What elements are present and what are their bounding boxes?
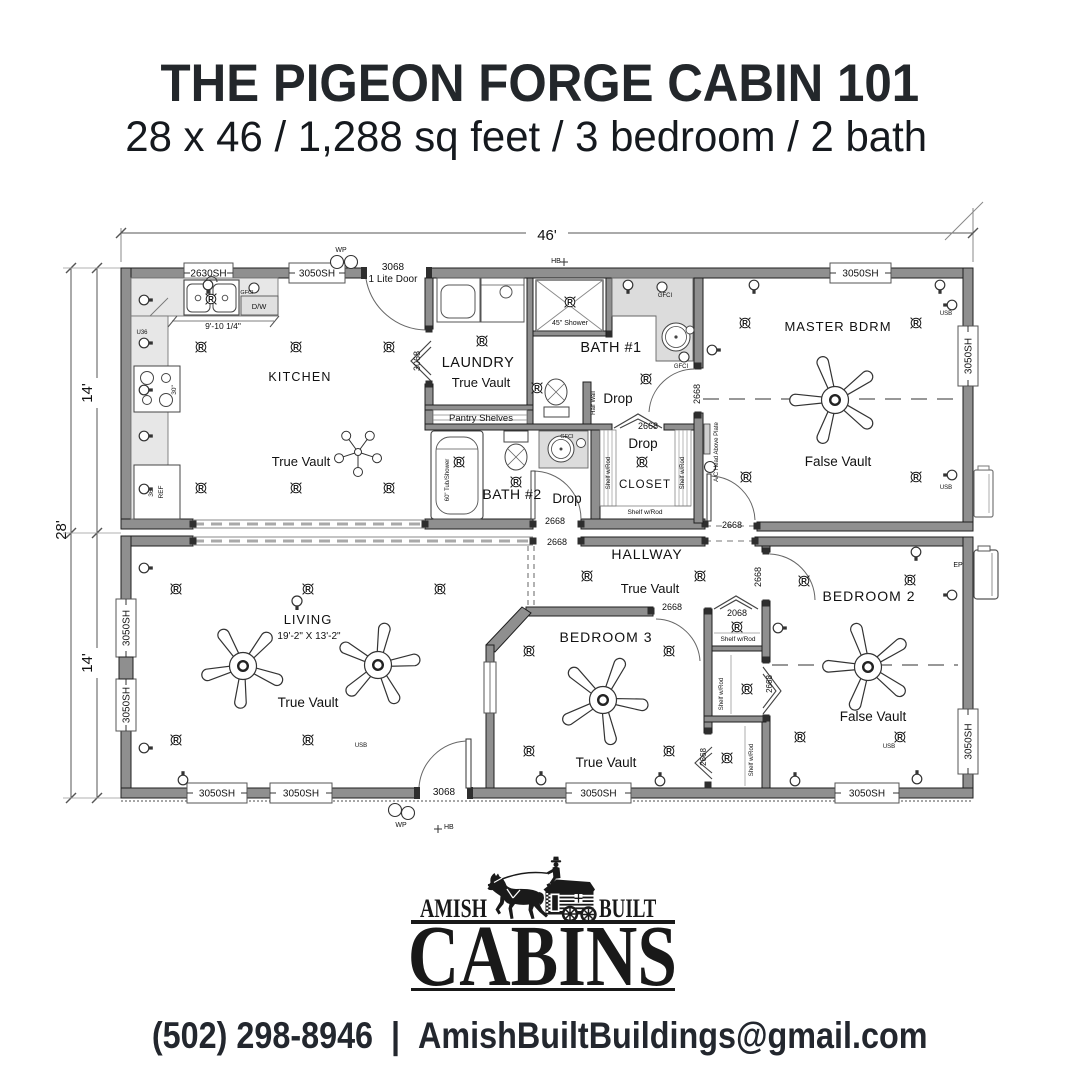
- svg-text:45" Shower: 45" Shower: [552, 320, 589, 327]
- svg-text:A/C Head Above Plate: A/C Head Above Plate: [714, 421, 720, 481]
- svg-text:3050SH: 3050SH: [283, 789, 319, 800]
- svg-text:R: R: [744, 685, 750, 694]
- svg-text:R: R: [293, 343, 299, 352]
- svg-text:False Vault: False Vault: [840, 709, 907, 724]
- svg-text:R: R: [643, 375, 649, 384]
- svg-text:3050SH: 3050SH: [199, 789, 235, 800]
- svg-text:R: R: [173, 736, 179, 745]
- svg-text:R: R: [666, 647, 672, 656]
- svg-text:R: R: [697, 572, 703, 581]
- svg-text:R: R: [897, 733, 903, 742]
- svg-text:Pantry Shelves: Pantry Shelves: [449, 413, 513, 424]
- svg-text:3050SH: 3050SH: [842, 269, 878, 280]
- svg-text:14': 14': [79, 653, 96, 673]
- svg-text:R: R: [386, 343, 392, 352]
- svg-text:R: R: [907, 576, 913, 585]
- svg-text:BEDROOM 2: BEDROOM 2: [822, 588, 915, 604]
- svg-text:3068: 3068: [412, 351, 422, 371]
- svg-text:2668: 2668: [692, 384, 702, 404]
- svg-text:R: R: [742, 319, 748, 328]
- svg-text:R: R: [584, 572, 590, 581]
- svg-text:USB: USB: [940, 485, 952, 491]
- svg-text:BATH #1: BATH #1: [580, 340, 641, 356]
- svg-text:3050SH: 3050SH: [122, 610, 133, 646]
- svg-text:3068: 3068: [382, 262, 405, 273]
- svg-text:R: R: [386, 484, 392, 493]
- svg-text:Shelf w/Rod: Shelf w/Rod: [606, 457, 612, 489]
- svg-text:USB: USB: [883, 744, 895, 750]
- svg-text:Shelf w/Rod: Shelf w/Rod: [720, 636, 755, 643]
- svg-text:3050SH: 3050SH: [964, 338, 975, 374]
- svg-text:HB: HB: [444, 824, 454, 831]
- svg-text:2668: 2668: [547, 537, 567, 547]
- svg-text:3050SH: 3050SH: [964, 723, 975, 759]
- svg-text:60" Tub/Shower: 60" Tub/Shower: [445, 459, 451, 502]
- svg-text:D/W: D/W: [252, 302, 268, 311]
- svg-text:GFCI: GFCI: [674, 364, 689, 370]
- svg-text:Shelf w/Rod: Shelf w/Rod: [749, 744, 755, 776]
- svg-text:HB: HB: [551, 258, 561, 265]
- svg-text:LIVING: LIVING: [284, 612, 333, 627]
- svg-text:R: R: [724, 754, 730, 763]
- svg-text:Drop: Drop: [552, 491, 581, 506]
- svg-text:1 Lite Door: 1 Lite Door: [369, 274, 419, 285]
- svg-text:R: R: [913, 473, 919, 482]
- svg-text:Shelf w/Rod: Shelf w/Rod: [719, 678, 725, 710]
- svg-text:2668: 2668: [545, 516, 565, 526]
- svg-text:HALLWAY: HALLWAY: [611, 546, 682, 562]
- svg-text:R: R: [666, 747, 672, 756]
- svg-text:2668: 2668: [765, 675, 774, 693]
- svg-text:False Vault: False Vault: [805, 454, 872, 469]
- svg-text:R: R: [526, 747, 532, 756]
- svg-text:True Vault: True Vault: [452, 375, 511, 390]
- svg-text:True Vault: True Vault: [621, 581, 680, 596]
- svg-text:3050SH: 3050SH: [849, 789, 885, 800]
- svg-text:R: R: [534, 384, 540, 393]
- svg-text:2668: 2668: [662, 602, 682, 612]
- svg-text:CLOSET: CLOSET: [619, 479, 671, 491]
- svg-text:R: R: [734, 623, 740, 632]
- svg-text:R: R: [208, 295, 214, 304]
- svg-text:R: R: [913, 319, 919, 328]
- svg-text:LAUNDRY: LAUNDRY: [442, 355, 515, 371]
- svg-text:2668: 2668: [638, 421, 658, 431]
- svg-text:WP: WP: [395, 822, 407, 829]
- svg-text:Shelf w/Rod: Shelf w/Rod: [680, 457, 686, 489]
- svg-text:Shelf w/Rod: Shelf w/Rod: [627, 509, 662, 516]
- svg-text:46': 46': [537, 227, 557, 244]
- svg-text:30": 30": [171, 385, 178, 395]
- svg-text:GFCI: GFCI: [240, 290, 254, 296]
- svg-text:9'-10 1/4": 9'-10 1/4": [205, 321, 241, 331]
- svg-text:R: R: [437, 585, 443, 594]
- svg-text:REF: REF: [158, 485, 165, 498]
- svg-text:Half Wall: Half Wall: [591, 391, 597, 415]
- svg-text:BATH #2: BATH #2: [482, 486, 541, 502]
- svg-text:R: R: [639, 458, 645, 467]
- svg-text:Drop: Drop: [628, 436, 657, 451]
- svg-text:3050SH: 3050SH: [122, 687, 133, 723]
- svg-text:R: R: [526, 647, 532, 656]
- svg-text:True Vault: True Vault: [272, 454, 331, 469]
- svg-text:R: R: [305, 736, 311, 745]
- svg-text:R: R: [743, 473, 749, 482]
- svg-text:R: R: [479, 337, 485, 346]
- svg-text:14': 14': [79, 383, 96, 403]
- svg-text:R: R: [198, 343, 204, 352]
- svg-text:MASTER BDRM: MASTER BDRM: [784, 319, 891, 334]
- svg-text:R: R: [801, 577, 807, 586]
- svg-text:U36: U36: [136, 330, 148, 336]
- svg-text:R: R: [293, 484, 299, 493]
- svg-text:2068: 2068: [727, 608, 747, 618]
- svg-text:R: R: [567, 298, 573, 307]
- svg-text:3050SH: 3050SH: [580, 789, 616, 800]
- svg-text:R: R: [797, 733, 803, 742]
- svg-text:R: R: [173, 585, 179, 594]
- svg-text:R: R: [198, 484, 204, 493]
- svg-text:Drop: Drop: [603, 391, 632, 406]
- svg-text:USB: USB: [355, 743, 367, 749]
- svg-text:19'-2" X 13'-2": 19'-2" X 13'-2": [277, 631, 341, 642]
- svg-text:USB: USB: [940, 311, 952, 317]
- svg-text:2668: 2668: [722, 520, 742, 530]
- svg-text:BEDROOM 3: BEDROOM 3: [559, 629, 652, 645]
- svg-text:True Vault: True Vault: [576, 755, 637, 770]
- svg-text:EP: EP: [953, 562, 963, 569]
- svg-text:True Vault: True Vault: [278, 695, 339, 710]
- svg-text:3050SH: 3050SH: [299, 269, 335, 280]
- svg-text:R: R: [456, 458, 462, 467]
- svg-text:2668: 2668: [753, 567, 763, 587]
- svg-text:WP: WP: [335, 247, 347, 254]
- svg-text:GFCI: GFCI: [560, 434, 574, 440]
- svg-text:3068: 3068: [433, 787, 456, 798]
- svg-text:2668: 2668: [699, 748, 708, 766]
- svg-text:KITCHEN: KITCHEN: [268, 370, 331, 384]
- svg-text:R: R: [305, 585, 311, 594]
- svg-text:GFCI: GFCI: [658, 293, 673, 299]
